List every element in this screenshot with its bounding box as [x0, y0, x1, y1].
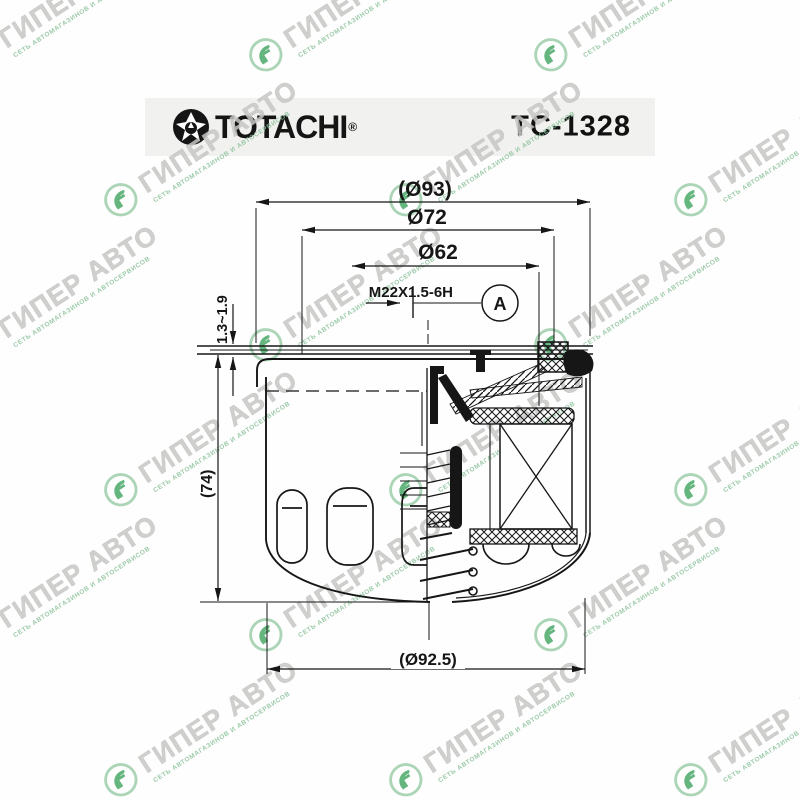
- filter-seating-plate: [197, 346, 593, 354]
- dim-thread-spec: M22X1.5-6H: [369, 284, 453, 301]
- product-image: TOTACHI ® TC-1328 ГИПЕР АВТО СЕТЬ АВТОМА…: [0, 0, 800, 800]
- dim-body-diameter: (Ø92.5): [399, 650, 457, 669]
- dim-outer-diameter: (Ø93): [398, 178, 452, 201]
- element-top-cap: [470, 408, 574, 424]
- dim-body-height: (74): [199, 470, 216, 498]
- technical-drawing: (Ø93) Ø72 Ø62 M22X1.5-6H A 1.3~1.9 (74) …: [0, 0, 800, 800]
- dim-plate-thickness: 1.3~1.9: [215, 295, 231, 344]
- dim-balloon-a: A: [494, 294, 507, 314]
- dim-inner-diameter: Ø62: [418, 241, 458, 264]
- element-bottom-cap: [470, 529, 577, 544]
- dim-flange-diameter: Ø72: [407, 206, 447, 229]
